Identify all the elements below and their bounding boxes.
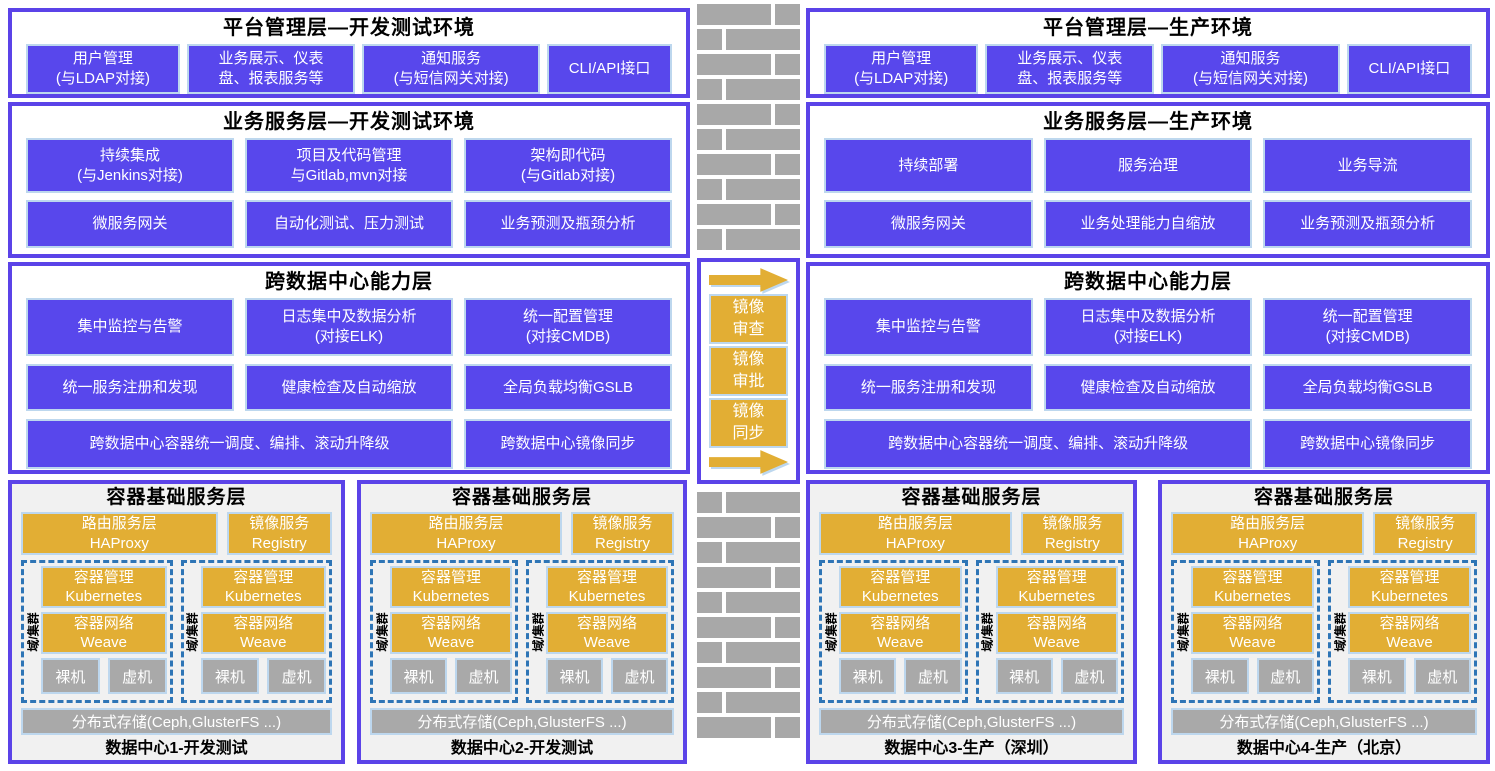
crossdc-image-sync-box: 跨数据中心镜像同步 bbox=[1263, 419, 1472, 469]
vm-box: 虚机 bbox=[1257, 658, 1315, 694]
right-arrow-icon bbox=[709, 450, 788, 474]
cluster: 域/集群 容器管理 Kubernetes 容器网络 Weave 裸机 虚机 bbox=[976, 560, 1125, 703]
dc-name-label: 数据中心3-生产（深圳） bbox=[810, 738, 1133, 760]
cluster: 域/集群 容器管理 Kubernetes 容器网络 Weave 裸机 虚机 bbox=[181, 560, 333, 703]
datacenter-2-panel: 容器基础服务层 路由服务层 HAProxy 镜像服务 Registry 域/集群… bbox=[357, 480, 687, 764]
crossdc-layer-left-panel: 跨数据中心能力层 集中监控与告警 日志集中及数据分析 (对接ELK) 统一配置管… bbox=[8, 262, 690, 474]
business-layer-dev-panel: 业务服务层—开发测试环境 持续集成 (与Jenkins对接) 项目及代码管理 与… bbox=[8, 102, 690, 258]
vm-box: 虚机 bbox=[1414, 658, 1472, 694]
kubernetes-box: 容器管理 Kubernetes bbox=[839, 566, 962, 608]
brick-row bbox=[697, 642, 800, 663]
kubernetes-box: 容器管理 Kubernetes bbox=[546, 566, 668, 608]
platform-dev-title: 平台管理层—开发测试环境 bbox=[12, 12, 686, 41]
kubernetes-box: 容器管理 Kubernetes bbox=[41, 566, 167, 608]
image-approval-step: 镜像 审批 bbox=[709, 346, 788, 396]
notification-box: 通知服务 (与短信网关对接) bbox=[362, 44, 540, 94]
cd-box: 持续部署 bbox=[824, 138, 1033, 193]
brick-row bbox=[697, 29, 800, 50]
cluster: 域/集群 容器管理 Kubernetes 容器网络 Weave 裸机 虚机 bbox=[1328, 560, 1477, 703]
autotest-box: 自动化测试、压力测试 bbox=[245, 200, 453, 248]
code-mgmt-box: 项目及代码管理 与Gitlab,mvn对接 bbox=[245, 138, 453, 193]
bare-metal-box: 裸机 bbox=[839, 658, 896, 694]
weave-network-box: 容器网络 Weave bbox=[41, 612, 167, 654]
business-layer-prod-panel: 业务服务层—生产环境 持续部署 服务治理 业务导流 微服务网关 业务处理能力自缩… bbox=[806, 102, 1490, 258]
monitor-alert-box: 集中监控与告警 bbox=[26, 298, 234, 356]
bare-metal-box: 裸机 bbox=[390, 658, 447, 694]
brick-row bbox=[697, 179, 800, 200]
vm-box: 虚机 bbox=[108, 658, 167, 694]
platform-layer-prod-panel: 平台管理层—生产环境 用户管理 (与LDAP对接) 业务展示、仪表 盘、报表服务… bbox=[806, 8, 1490, 98]
cluster-domain-label: 域/集群 bbox=[822, 563, 839, 700]
health-autoscale-box: 健康检查及自动缩放 bbox=[1044, 364, 1253, 411]
datacenter-3-panel: 容器基础服务层 路由服务层 HAProxy 镜像服务 Registry 域/集群… bbox=[806, 480, 1137, 764]
platform-layer-dev-panel: 平台管理层—开发测试环境 用户管理 (与LDAP对接) 业务展示、仪表 盘、报表… bbox=[8, 8, 690, 98]
distributed-storage-bar: 分布式存储(Ceph,GlusterFS ...) bbox=[370, 708, 674, 735]
dashboard-report-box: 业务展示、仪表 盘、报表服务等 bbox=[187, 44, 355, 94]
service-governance-box: 服务治理 bbox=[1044, 138, 1253, 193]
vm-box: 虚机 bbox=[267, 658, 326, 694]
crossdc-layer-right-panel: 跨数据中心能力层 集中监控与告警 日志集中及数据分析 (对接ELK) 统一配置管… bbox=[806, 262, 1490, 474]
cluster-domain-label: 域/集群 bbox=[373, 563, 390, 700]
traffic-steering-box: 业务导流 bbox=[1263, 138, 1472, 193]
dashboard-report-box: 业务展示、仪表 盘、报表服务等 bbox=[985, 44, 1154, 94]
gslb-box: 全局负载均衡GSLB bbox=[1263, 364, 1472, 411]
brick-row bbox=[697, 567, 800, 588]
cluster: 域/集群 容器管理 Kubernetes 容器网络 Weave 裸机 虚机 bbox=[21, 560, 173, 703]
weave-network-box: 容器网络 Weave bbox=[1191, 612, 1314, 654]
gslb-box: 全局负载均衡GSLB bbox=[464, 364, 672, 411]
service-registry-box: 统一服务注册和发现 bbox=[824, 364, 1033, 411]
routing-haproxy-box: 路由服务层 HAProxy bbox=[21, 512, 218, 555]
brick-row bbox=[697, 492, 800, 513]
brick-wall-top bbox=[697, 4, 800, 254]
brick-row bbox=[697, 4, 800, 25]
kubernetes-box: 容器管理 Kubernetes bbox=[201, 566, 327, 608]
dc-name-label: 数据中心4-生产（北京） bbox=[1162, 738, 1486, 760]
image-workflow-panel: 镜像 审查 镜像 审批 镜像 同步 bbox=[697, 258, 800, 484]
right-arrow-icon bbox=[709, 268, 788, 292]
user-mgmt-box: 用户管理 (与LDAP对接) bbox=[26, 44, 180, 94]
distributed-storage-bar: 分布式存储(Ceph,GlusterFS ...) bbox=[21, 708, 332, 735]
dc-layer-title: 容器基础服务层 bbox=[810, 486, 1133, 510]
bare-metal-box: 裸机 bbox=[1191, 658, 1249, 694]
cli-api-box: CLI/API接口 bbox=[1347, 44, 1472, 94]
cluster-domain-label: 域/集群 bbox=[184, 563, 201, 700]
weave-network-box: 容器网络 Weave bbox=[996, 612, 1119, 654]
bare-metal-box: 裸机 bbox=[41, 658, 100, 694]
cluster: 域/集群 容器管理 Kubernetes 容器网络 Weave 裸机 虚机 bbox=[526, 560, 674, 703]
kubernetes-box: 容器管理 Kubernetes bbox=[996, 566, 1119, 608]
brick-row bbox=[697, 667, 800, 688]
cluster-domain-label: 域/集群 bbox=[1331, 563, 1348, 700]
log-analysis-box: 日志集中及数据分析 (对接ELK) bbox=[1044, 298, 1253, 356]
vm-box: 虚机 bbox=[455, 658, 512, 694]
ci-box: 持续集成 (与Jenkins对接) bbox=[26, 138, 234, 193]
kubernetes-box: 容器管理 Kubernetes bbox=[1348, 566, 1471, 608]
monitor-alert-box: 集中监控与告警 bbox=[824, 298, 1033, 356]
platform-prod-title: 平台管理层—生产环境 bbox=[810, 12, 1486, 41]
distributed-storage-bar: 分布式存储(Ceph,GlusterFS ...) bbox=[819, 708, 1124, 735]
datacenter-1-panel: 容器基础服务层 路由服务层 HAProxy 镜像服务 Registry 域/集群… bbox=[8, 480, 345, 764]
brick-row bbox=[697, 79, 800, 100]
vm-box: 虚机 bbox=[1061, 658, 1118, 694]
routing-haproxy-box: 路由服务层 HAProxy bbox=[370, 512, 562, 555]
brick-row bbox=[697, 592, 800, 613]
health-autoscale-box: 健康检查及自动缩放 bbox=[245, 364, 453, 411]
bare-metal-box: 裸机 bbox=[201, 658, 260, 694]
microservice-gateway-box: 微服务网关 bbox=[824, 200, 1033, 248]
crossdc-scheduling-box: 跨数据中心容器统一调度、编排、滚动升降级 bbox=[26, 419, 453, 469]
crossdc-image-sync-box: 跨数据中心镜像同步 bbox=[464, 419, 672, 469]
routing-haproxy-box: 路由服务层 HAProxy bbox=[1171, 512, 1364, 555]
image-review-step: 镜像 审查 bbox=[709, 294, 788, 344]
architecture-diagram: 平台管理层—开发测试环境 用户管理 (与LDAP对接) 业务展示、仪表 盘、报表… bbox=[0, 0, 1495, 771]
crossdc-left-title: 跨数据中心能力层 bbox=[12, 266, 686, 295]
bare-metal-box: 裸机 bbox=[1348, 658, 1406, 694]
dc-name-label: 数据中心1-开发测试 bbox=[12, 738, 341, 760]
weave-network-box: 容器网络 Weave bbox=[1348, 612, 1471, 654]
registry-box: 镜像服务 Registry bbox=[1373, 512, 1477, 555]
crossdc-scheduling-box: 跨数据中心容器统一调度、编排、滚动升降级 bbox=[824, 419, 1252, 469]
cluster-domain-label: 域/集群 bbox=[1174, 563, 1191, 700]
cluster: 域/集群 容器管理 Kubernetes 容器网络 Weave 裸机 虚机 bbox=[1171, 560, 1320, 703]
image-sync-step: 镜像 同步 bbox=[709, 398, 788, 448]
dc-layer-title: 容器基础服务层 bbox=[12, 486, 341, 510]
crossdc-right-title: 跨数据中心能力层 bbox=[810, 266, 1486, 295]
brick-row bbox=[697, 229, 800, 250]
user-mgmt-box: 用户管理 (与LDAP对接) bbox=[824, 44, 978, 94]
dc-layer-title: 容器基础服务层 bbox=[1162, 486, 1486, 510]
brick-row bbox=[697, 104, 800, 125]
kubernetes-box: 容器管理 Kubernetes bbox=[390, 566, 512, 608]
cluster-domain-label: 域/集群 bbox=[979, 563, 996, 700]
forecast-bottleneck-box: 业务预测及瓶颈分析 bbox=[1263, 200, 1472, 248]
business-prod-title: 业务服务层—生产环境 bbox=[810, 106, 1486, 135]
cluster-domain-label: 域/集群 bbox=[24, 563, 41, 700]
vm-box: 虚机 bbox=[611, 658, 668, 694]
log-analysis-box: 日志集中及数据分析 (对接ELK) bbox=[245, 298, 453, 356]
weave-network-box: 容器网络 Weave bbox=[546, 612, 668, 654]
dc-name-label: 数据中心2-开发测试 bbox=[361, 738, 683, 760]
kubernetes-box: 容器管理 Kubernetes bbox=[1191, 566, 1314, 608]
cluster: 域/集群 容器管理 Kubernetes 容器网络 Weave 裸机 虚机 bbox=[819, 560, 968, 703]
distributed-storage-bar: 分布式存储(Ceph,GlusterFS ...) bbox=[1171, 708, 1477, 735]
bare-metal-box: 裸机 bbox=[996, 658, 1053, 694]
bare-metal-box: 裸机 bbox=[546, 658, 603, 694]
brick-row bbox=[697, 717, 800, 738]
cli-api-box: CLI/API接口 bbox=[547, 44, 672, 94]
datacenter-4-panel: 容器基础服务层 路由服务层 HAProxy 镜像服务 Registry 域/集群… bbox=[1158, 480, 1490, 764]
registry-box: 镜像服务 Registry bbox=[227, 512, 332, 555]
routing-haproxy-box: 路由服务层 HAProxy bbox=[819, 512, 1012, 555]
microservice-gateway-box: 微服务网关 bbox=[26, 200, 234, 248]
forecast-bottleneck-box: 业务预测及瓶颈分析 bbox=[464, 200, 672, 248]
registry-box: 镜像服务 Registry bbox=[1021, 512, 1124, 555]
autoscale-capacity-box: 业务处理能力自缩放 bbox=[1044, 200, 1253, 248]
registry-box: 镜像服务 Registry bbox=[571, 512, 674, 555]
service-registry-box: 统一服务注册和发现 bbox=[26, 364, 234, 411]
brick-row bbox=[697, 542, 800, 563]
business-dev-title: 业务服务层—开发测试环境 bbox=[12, 106, 686, 135]
weave-network-box: 容器网络 Weave bbox=[390, 612, 512, 654]
brick-row bbox=[697, 692, 800, 713]
iac-box: 架构即代码 (与Gitlab对接) bbox=[464, 138, 672, 193]
brick-row bbox=[697, 129, 800, 150]
brick-row bbox=[697, 517, 800, 538]
brick-row bbox=[697, 617, 800, 638]
config-mgmt-box: 统一配置管理 (对接CMDB) bbox=[1263, 298, 1472, 356]
dc-layer-title: 容器基础服务层 bbox=[361, 486, 683, 510]
cluster: 域/集群 容器管理 Kubernetes 容器网络 Weave 裸机 虚机 bbox=[370, 560, 518, 703]
cluster-domain-label: 域/集群 bbox=[529, 563, 546, 700]
brick-row bbox=[697, 54, 800, 75]
weave-network-box: 容器网络 Weave bbox=[201, 612, 327, 654]
notification-box: 通知服务 (与短信网关对接) bbox=[1161, 44, 1340, 94]
vm-box: 虚机 bbox=[904, 658, 961, 694]
brick-row bbox=[697, 154, 800, 175]
config-mgmt-box: 统一配置管理 (对接CMDB) bbox=[464, 298, 672, 356]
brick-wall-bottom bbox=[697, 492, 800, 742]
weave-network-box: 容器网络 Weave bbox=[839, 612, 962, 654]
brick-row bbox=[697, 204, 800, 225]
